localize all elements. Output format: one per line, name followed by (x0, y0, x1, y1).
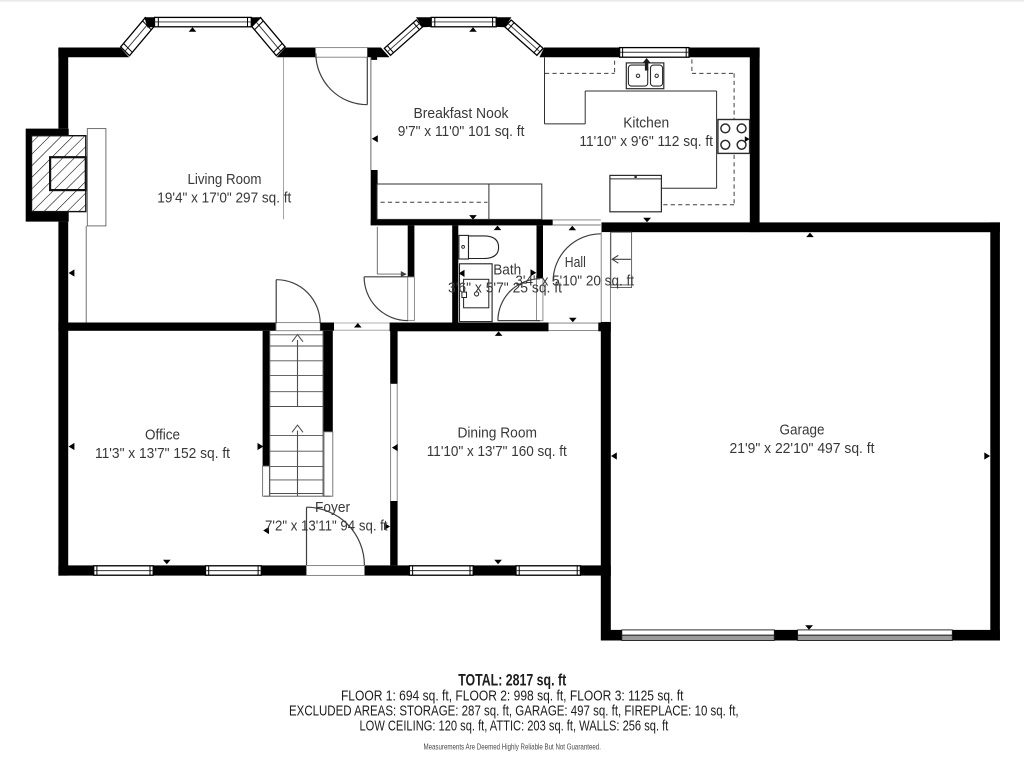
svg-text:21'9" x 22'10" 497 sq. ft: 21'9" x 22'10" 497 sq. ft (730, 440, 876, 457)
svg-text:Dining Room: Dining Room (457, 425, 537, 442)
svg-text:Measurements Are Deemed Highly: Measurements Are Deemed Highly Reliable … (423, 742, 601, 752)
svg-text:Kitchen: Kitchen (623, 114, 669, 131)
svg-text:19'4" x 17'0" 297 sq. ft: 19'4" x 17'0" 297 sq. ft (157, 189, 292, 206)
svg-text:11'10" x 9'6" 112 sq. ft: 11'10" x 9'6" 112 sq. ft (579, 133, 713, 150)
svg-text:LOW CEILING: 120 sq. ft, ATTIC: LOW CEILING: 120 sq. ft, ATTIC: 203 sq. … (360, 718, 669, 735)
svg-text:Office: Office (145, 426, 180, 443)
svg-text:Living Room: Living Room (188, 171, 262, 188)
svg-text:7'2" x 13'11" 94 sq. ft: 7'2" x 13'11" 94 sq. ft (265, 518, 388, 535)
svg-text:11'3" x 13'7" 152 sq. ft: 11'3" x 13'7" 152 sq. ft (95, 445, 231, 462)
svg-text:Foyer: Foyer (315, 499, 350, 516)
svg-text:11'10" x 13'7" 160 sq. ft: 11'10" x 13'7" 160 sq. ft (427, 443, 568, 460)
svg-text:3'4" x 5'10" 20 sq. ft: 3'4" x 5'10" 20 sq. ft (515, 272, 634, 289)
svg-text:Garage: Garage (780, 421, 825, 438)
svg-text:9'7" x 11'0" 101 sq. ft: 9'7" x 11'0" 101 sq. ft (398, 123, 525, 140)
svg-text:Hall: Hall (565, 254, 586, 271)
svg-text:Breakfast Nook: Breakfast Nook (414, 105, 509, 122)
